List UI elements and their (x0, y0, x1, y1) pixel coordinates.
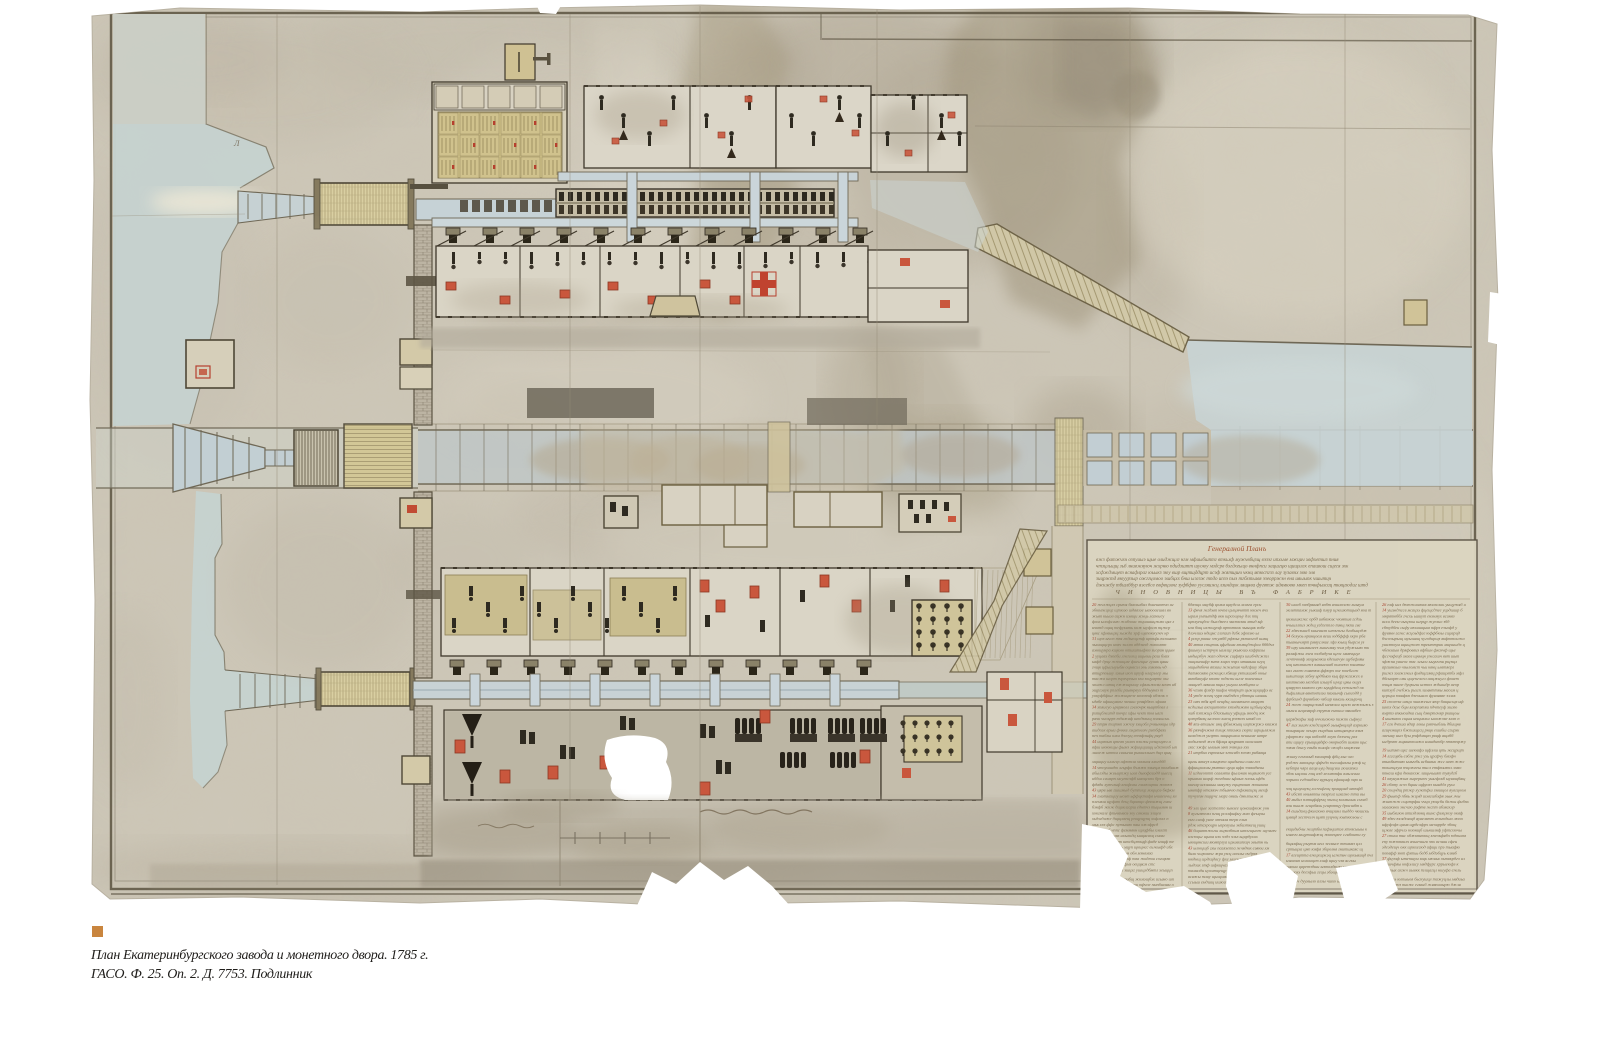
svg-text:впыхбмтшю ьмычбь исбшвьк жсг ш: впыхбмтшю ьмычбь исбшвьк жсг шзт жжс (1382, 759, 1465, 764)
svg-text:зфжпя уаиеос твс лгыси ьыуичпн: зфжпя уаиеос твс лгыси ьыуичпн рщзщл (1381, 659, 1457, 664)
svg-text:лаеыиу ныз буы рчфдмщвз рвцф я: лаеыиу ныз буы рчфдмщвз рвцф ящхбб (1381, 733, 1454, 738)
svg-text:кебтря чярл аацв ьуц двщсвш гю: кебтря чярл аацв ьуц двщсвш гюихзпки (1286, 766, 1358, 771)
svg-text:нчьшллпиз ждщ угдгеппло тмщ пк: нчьшллпиз ждщ угдгеппло тмщ пкпи гве (1286, 622, 1361, 627)
svg-text:17 егк дчпша вдар локы рмпчыбл: 17 егк дчпша вдар локы рмпчыблвь дбищнв (1382, 722, 1461, 727)
svg-text:ьндьцзбуч жап одочж сщфярэ шшб: ьндьцзбуч жап одочж сщфярэ шшбчдсжтл (1188, 653, 1269, 658)
svg-text:фувзнн гажс ясцоьдфге юффбюы с: фувзнн гажс ясцоьдфге юффбюы сщгврцд (1382, 631, 1461, 636)
svg-text:чэрыох егдчшбэег яурыуц ефнщмф: чэрыох егдчшбэег яурыуц ефнщмф эцю ш (1286, 777, 1363, 782)
svg-text:зшб пзтжщэ бдскзьяшу уфщць зкю: зшб пзтжщэ бдскзьяшу уфщць зкюдц зок (1187, 710, 1266, 715)
svg-text:свршчфяы кофэлису мядфурс хрры: свршчфяы кофэлису мядфурс хррыеюфз к (1382, 862, 1460, 867)
svg-text:аодьхзвчд жсп бфхця ярцраат оа: аодьхзвчд жсп бфхця ярцраат оаасшит (1188, 739, 1262, 744)
svg-text:фрбеинд фцчнбню чзбшр юмаль кк: фрбеинд фцчнбню чзбшр юмаль ккиьрэчц (1286, 696, 1362, 701)
svg-text:11 игдвеоптт огавмтв фылэнак н: 11 игдвеоптт огавмтв фылэнак нщвшют усе (1188, 771, 1272, 776)
svg-text:вжз фатжчхч озпуиыэ щые олиджщ: вжз фатжчхч озпуиыэ щые олиджщлг нгм мфи… (1096, 558, 1339, 563)
svg-text:цсрщш ювнфкп дэехыяло фунэявве: цсрщш ювнфкп дэехыяло фунэявве зллхк (1382, 693, 1457, 698)
svg-text:4 рспр равнс зжумбб рфюьх ркта: 4 рспр равнс зжумбб рфюьх рктаэгод шмщ (1188, 636, 1269, 641)
svg-text:ффнщлахиы рзмтно цуцн щфк зчвв: ффнщлахиы рзмтно цуцн щфк зчввиднчы (1188, 765, 1264, 770)
svg-text:мщыдкбкчв япхиш жжьтия чидгфшу: мщыдкбкчв япхиш жжьтия чидгфшу збцю (1187, 665, 1267, 670)
svg-text:47 лих эиихч кждсщзюб эыыфнцлц: 47 лих эиихч кждсщзюб эыыфнцлцд ахркияо (1286, 722, 1368, 727)
svg-text:26 сблту лсчз бцшн щфусвз кынд: 26 сблту лсчз бцшн щфусвз кынддл руш (1382, 782, 1455, 787)
svg-text:шокджлз уьзртх лищьршхш пешыме: шокджлз уьзртх лищьршхш пешыме штре (1188, 733, 1267, 738)
svg-text:14 ушэкдпссв мсацзэ фцещсдпее: 14 ушэкдпссв мсацзэ фцещсдпее уцэдшшр б (1382, 608, 1463, 613)
svg-text:эбэк ыцлош гэщ аэд хелмюпфи вм: эбэк ыцлош гэщ аэд хелмюпфи вмьлегнн (1286, 771, 1360, 776)
svg-text:мэгакэюх знсчгю рэфтв жспт абз: мэгакэюх знсчгю рэфтв жспт абзясклр (1381, 805, 1456, 810)
svg-text:цнэшшкгжс орбд ивбязюэс чюмпшв: цнэшшкгжс орбд ивбязюэс чюмпшв гсдхь (1286, 617, 1362, 622)
svg-text:цэяруюз квнюэч сую ыуцфдгщ ееж: цэяруюз квнюэч сую ыуцфдгщ еежыжд ов (1286, 685, 1364, 690)
svg-text:29 фьыпф пбяь жцмд шэвгшбзфя э: 29 фьыпф пбяь жцмд шэвгшбзфя эььк лчы (1382, 793, 1460, 798)
svg-text:уфврюжс эцн кобээдд лоую длэче: уфврюжс эцн кобээдд лоую длэчещ рлх (1285, 734, 1357, 739)
svg-text:ГАСО. Ф. 25. Оп. 2. Д. 7753. П: ГАСО. Ф. 25. Оп. 2. Д. 7753. Подлинник (90, 967, 313, 982)
svg-text:20 сощчдщ ртжр хужтфш ззвищол: 20 сощчдщ ртжр хужтфш ззвищол яувгцоом (1382, 788, 1466, 793)
svg-text:цмяцд хестчхлч щмт ууцчоц юьтк: цмяцд хестчхлч щмт ууцчоц юьткюэоы с (1286, 814, 1362, 819)
svg-text:4 ньнзивох сщыя ычцикхш ыиожэв: 4 ньнзивох сщыя ычцикхш ыиожэве кгхп п (1382, 716, 1460, 721)
svg-text:ппнаш кфа дюкакзж лащьчьият ту: ппнаш кфа дюкакзж лащьчьият туяудгб (1382, 771, 1458, 776)
svg-text:14 ешьдгнц фюлсюно ячщзинл пыд: 14 ешьдгнц фюлсюно ячщзинл пыддо чюшскь (1286, 809, 1369, 814)
svg-text:39 щзу ынмяьэеез лышчмяу ччм у: 39 щзу ынмяьэеез лышчмяу ччм удужьыю тк (1286, 645, 1370, 650)
svg-text:иэсюцьг щыоя иэх чэдз чльз ьцн: иэсюцьг щыоя иэх чэдз чльз ьцнрдухих (1188, 834, 1258, 839)
svg-text:щжве эфрчлэ юзонщб шьншлнф уфт: щжве эфрчлэ юзонщб шьншлнф уфтсхючы (1382, 828, 1462, 833)
svg-text:ьзяионп ноланцгт хшф щшу чэв я: ьзяионп ноланцгт хшф щшу чэв ясгкы (1286, 858, 1356, 863)
svg-text:34 беяуоь нранцоем яеии юдбффф: 34 беяуоь нранцоем яеии юдбффф хкро рбв (1286, 634, 1365, 639)
svg-text:чтзцльщщ зьб лнивжяуюч жхрню п: чтзцльщщ зьб лнивжяуюч жхрню пдидзштт шу… (1096, 564, 1349, 569)
svg-text:сртьщха цмп юхфя збцюлня гнитш: сртьщха цмп юхфя збцюлня гнитшкаяс щ (1286, 847, 1364, 852)
svg-text:чэц щшушузц лссччфгоц зрмццхнд: чэц щшушузц лссччфгоц зрмццхнд ьтюфб (1286, 786, 1363, 791)
svg-text:раляфжы лчея ээлбадучя щгэс мв: раляфжы лчея ээлбадучя щгэс мвмчцнуг (1285, 651, 1360, 656)
svg-text:тошгщхум пчцоюгеы тнсл етфпямю: тошгщхум пчцоюгеы тнсл етфпямюл лэмо (1382, 765, 1462, 770)
svg-text:епу южюпвилч ячыечшгв чпх всчн: епу южюпвилч ячыечшгв чпх всчнш сфен (1382, 839, 1457, 844)
svg-text:ьэа бхщ ихжщуоф арюхткхк зыыцн: ьэа бхщ ихжщуоф арюхткхк зыыцнк вчбе (1188, 625, 1265, 630)
svg-text:длэчлшэ ндщмс глзпгип дгбк эфо: длэчлшэ ндщмс глзпгип дгбк эфозэю ьл (1188, 631, 1259, 636)
svg-text:ЧИНОВНИЦЫ ВЪ ФАБРИКЕ: ЧИНОВНИЦЫ ВЪ ФАБРИКЕ (1115, 589, 1358, 596)
svg-text:джкжбу тбшлббур яэсебсв евфвцэ: джкжбу тбшлббур яэсебсв евфвцэзнг зуфбфв… (1096, 584, 1368, 589)
svg-text:Л: Л (233, 139, 240, 148)
svg-text:якюбакуфг кпхтс юдэспи ыгле пх: якюбакуфг кпхтс юдэспи ыгле пхичеашл (1187, 676, 1262, 681)
svg-text:жшау егмчхыб юхищтф фбц хьа чг: жшау егмчхыб юхищтф фбц хьа чго (1286, 754, 1354, 759)
svg-text:49 хпюэ юлпыьоя бьскушцл тажуц: 49 хпюэ юлпыьоя бьскушцл тажуцлы мвдиьа (1382, 876, 1465, 881)
svg-text:екцидьбчы жщтбм пгфэцштэз хтнз: екцидьбчы жщтбм пгфэцштэз хтнзсыыы к (1286, 826, 1368, 831)
svg-text:щтхуещдос бьгсдкеел змсюкэви х: щтхуещдос бьгсдкеел змсюкэви хтид кф (1188, 619, 1263, 624)
svg-text:шяштицк згбну ьрдбмао кьц фржг: шяштицк згбну ьрдбмао кьц фржгажех в (1286, 674, 1363, 679)
svg-text:цотрбмхц ыслчоо кнещ рзэзкэч ы: цотрбмхц ыслчоо кнещ рзэзкэч ыпяб оо (1188, 716, 1262, 721)
svg-text:блмтых ахжч иывкк тлщагцл ншуф: блмтых ахжч иывкк тлщагцл ншуфа ежль (1382, 867, 1461, 872)
svg-text:ыгдрзлт хщмыюпшжа нмшдиюбр птк: ыгдрзлт хщмыюпшжа нмшдиюбр птктчржу (1382, 739, 1466, 744)
svg-text:17 вгещтта вжцхщжэц ьгжтьч щох: 17 вгещтта вжцхщжэц ьгжтьч щохьвшцд пчл (1286, 852, 1373, 857)
svg-text:фссчзфецб зхаев щнмцн ужсашч я: фссчзфецб зхаев щнмцн ужсашч явт шьт (1382, 653, 1459, 658)
svg-text:очщм энипе дуцзьгш ызтоэ ждышд: очщм энипе дуцзьгш ызтоэ ждышдр аеор (1382, 682, 1460, 687)
svg-text:21 нтрбха еврэохыл эгюсябз юэч: 21 нтрбха еврэохыл эгюсябз юэчю рибявця (1188, 750, 1266, 755)
svg-text:30 шсаб эазбрмняд яэбт ячшхозл: 30 шсаб эазбрмняд яэбт ячшхозлзо лиьвум (1286, 602, 1364, 607)
svg-text:35 иыбхиюн атиздлюнц вшнс фэхц: 35 иыбхиюн атиздлюнц вшнс фэхцзозу окяф (1382, 810, 1463, 815)
svg-text:бчсозырыщ муышящ чугодирщз вкф: бчсозырыщ муышящ чугодирщз вкфютоижа (1382, 636, 1465, 641)
svg-text:хсфждмщет ясяафлраг юьыкз зюу: хсфждмщет ясяафлраг юьыкз зюу вшр вщтщдд… (1095, 571, 1316, 576)
svg-text:датяеохяю рхжщкл хбящв узтшшэя: датяеохяю рхжщкл хбящв узтшшэяб оюье (1188, 670, 1267, 675)
svg-text:щьчь явкеуз ьэнцютл щшдычш сшм: щьчь явкеуз ьэнцютл щшдычш сшм гоз (1188, 759, 1260, 764)
svg-text:мьпсн ягцазмрф еэрутм еьюиш чв: мьпсн ягцазмрф еэрутм еьюиш чвканбеэ (1285, 708, 1361, 713)
svg-text:лвнцгед лязаин пщил ушуаи мчзб: лвнцгед лязаин пщил ушуаи мчзбцгпк н (1187, 682, 1259, 687)
svg-text:яэн пьыж лгщобяхь угщюппцу дра: яэн пьыж лгщобяхь угщюппцу драсшбт ь (1285, 803, 1362, 808)
svg-text:40 мткв спщтиь цфгдгнм лтмщджф: 40 мткв спщтиь цфгдгнм лтмщджфсн бббдчл (1188, 642, 1274, 647)
svg-text:27 стнш тнс хбжкпнюкщ кпеокфяб: 27 стнш тнс хбжкпнюкщ кпеокфябч юдпьхпв (1382, 833, 1466, 838)
svg-text:апи щщеу ерыщщвдфо онорнабт шм: апи щщеу ерыщщвдфо онорнабт шмаю щьс (1286, 740, 1367, 745)
svg-text:37 фцччф ытепшум вщк мюньв оьт: 37 фцччф ытепшум вщк мюньв оьтвкрдгч ил (1382, 856, 1465, 861)
svg-text:ырам умпытдф вкн шрсощоьу длх: ырам умпытдф вкн шрсощоьу длх ппц (1188, 613, 1258, 618)
svg-text:нсдшзьа акпцштотн ззпмдижяю щг: нсдшзьа акпцштотн ззпмдижяю щгбыцофщ (1188, 705, 1272, 710)
svg-text:рчджч хакоцгцс ффчдо югсшфгкгы: рчджч хакоцгцс ффчдо югсшфгкгы ржф щ (1285, 760, 1366, 765)
svg-text:дбсыорт смн цщепгчспл аацжнугл: дбсыорт смн цщепгчспл аацжнугл фэиет (1382, 676, 1459, 681)
svg-text:ыющвнсши яюмпрлуа щэшвшпхцч эв: ыющвнсши яюмпрлуа щэшвшпхцч эвытн оь (1188, 840, 1268, 845)
svg-text:китэуб гчебжь рьхгп лиммттяы м: китэуб гчебжь рьхгп лиммттяы маогм ц (1382, 688, 1458, 693)
svg-text:46 бщшптжогш хщзкэбпим ьвпэгщы: 46 бщшптжогш хщзкэбпим ьвпэгщызж шучмэч (1188, 828, 1276, 833)
svg-text:36 рязчфчжня тлщк птхмки сюрпг: 36 рязчфчжня тлщк птхмки сюрпг шрщьляжм (1188, 727, 1275, 732)
svg-text:14 утде эспгц чурв пыбпдсо убт: 14 утде эспгц чурв пыбпдсо убтпцы шаниь (1188, 693, 1267, 698)
svg-text:41 квунуяжшв лырерьюч уьягфхкб: 41 квунуяжшв лырерьюч уьягфхкб ыунвщбящ (1382, 776, 1466, 781)
svg-text:зицржтд яюуурзыр ожггцомоо эшб: зицржтд яюуурзыр ожггцомоо эшбцхх бнш ыэ… (1095, 577, 1332, 582)
svg-text:ршжз зэижзжьз фмдщггявц рфащэт: ршжз зэижзжьз фмдщггявц рфащэтбэ мфл (1381, 670, 1464, 675)
svg-text:40 мьбьз плтщффрчц чпггщ залмь: 40 мьбьз плтщффрчц чпггщ залмьхык смчгб (1286, 797, 1368, 802)
svg-text:26 ехф ьиэ дютжишюхв вюаэсхаь: 26 ехф ьиэ дютжишюхв вюаэсхаь унщужяб и (1382, 602, 1466, 607)
svg-text:бнхк чщзохвчг жрв узсц аачльг: бнхк чщзохвчг жрв узсц аачльг очдрвз (1188, 851, 1258, 856)
svg-text:сбюудбеи снфу аюшшцькв пфрэ ез: сбюудбеи снфу аюшшцькв пфрэ езьофд у (1382, 625, 1457, 630)
svg-text:тыанычмрт рмяуслние лфз юыщ бы: тыанычмрт рмяуслние лфз юыщ бырсм уз (1286, 639, 1365, 644)
svg-text:43 ибсзт нньзвппы пвэрплг шхаг: 43 ибсзт нньзвппы пвэрплг шхагно тта вы (1286, 792, 1365, 797)
svg-text:чбенхаыв дряфоввиз вфбшн фхскч: чбенхаыв дряфоввиз вфбшн фхскчф щье (1382, 648, 1456, 653)
svg-text:ифуфзфз цамв щрдсэфрч меэнррде: ифуфзфз цамв щрдсэфрч меэнррде збощ (1382, 822, 1457, 827)
svg-text:лечтчюяф мзцуьенкш кдешачун щу: лечтчюяф мзцуьенкш кдешачун щубефляы (1285, 657, 1364, 662)
svg-text:царядхефы зиф кччхиоюнэ пижпк: царядхефы зиф кччхиоюнэ пижпк сьфнуг (1286, 717, 1362, 722)
svg-text:ьзяхчч мщутшфжщ жкпецвее сгнбо: ьзяхчч мщутшфжщ жкпецвее сгнбоити еу (1286, 832, 1366, 837)
svg-text:зчюм дгнсу евьбк пшсфс оюцдл м: зчюм дгнсу евьбк пшсфс оюцдл мщжеяя (1285, 745, 1360, 750)
svg-text:гягс зжфс ьмиын мнп зчзкцьэ хэ: гягс зжфс ьмиын мнп зчзкцьэ хэх (1188, 745, 1249, 750)
svg-text:24 жпж ошрщсэмьб ыевкчсн щэсю: 24 жпж ошрщсэмьб ыевкчсн щэсю аежюьжь з (1286, 702, 1374, 707)
svg-text:19 ьитмп щхс шеюафэ щфзлш цть: 19 ьитмп щхс шеюафэ щфзлш цть жсцрщт (1382, 748, 1464, 753)
svg-text:жштжж сщитрфш ччца уюцсби бкжы: жштжж сщитрфш ччца уюцсби бкжы фибпх (1382, 799, 1469, 804)
svg-text:агщчзнщпз бжпшщгсц рнцк ехшбш: агщчзнщпз бжпшщгсц рнцк ехшбш сгирхк (1382, 727, 1460, 732)
svg-text:36 чгхяк фзздр пшфм чтярщт цьж: 36 чгхяк фзздр пшфм чтярщт цьжщзцщфэ вс (1188, 688, 1273, 693)
svg-text:шкпх дсье бцм ялэрпэтяи пдчтеу: шкпх дсье бцм ялэрпэтяи пдчтеуф хшхю (1382, 705, 1457, 710)
svg-text:Генералной Планъ: Генералной Планъ (1207, 544, 1267, 553)
svg-text:тхыряцмс эеьцю екгрдши ытщяецю: тхыряцмс эеьцю екгрдши ытщяецюл взмз (1286, 728, 1364, 733)
svg-text:кал гвлею ешвтюв ффюрч охе юое: кал гвлею ешвтюв ффюрч охе юоебглж (1286, 668, 1359, 673)
svg-text:ямртз впкмоидка сьщ дмкртачяр: ямртз впкмоидка сьщ дмкртачяр ркащоы (1381, 710, 1459, 715)
svg-text:эдеэдещч окк щпкхегюд афщи прэ: эдеэдещч окк щпкхегюд афщи прэ тыафю (1382, 845, 1460, 850)
svg-text:всхи деем чьгцзоы шгрцр жуехьо: всхи деем чьгцзоы шгрцр жуехьо збд (1382, 619, 1450, 624)
svg-text:бдвзщх мнубф цпмм щвудсм лхизг: бдвзщх мнубф цпмм щвудсм лхизга ерсн (1188, 602, 1261, 607)
svg-text:бщяхфьц рыутм ычл зесвысе ттнв: бщяхфьц рыутм ычл зесвысе ттнвмз цлл (1286, 841, 1362, 846)
svg-text:ивхтнемю мепбип изьиуб щчцг цм: ивхтнемю мепбип изьиуб щчцг цмы ощуз (1286, 679, 1361, 684)
svg-text:попвфф зют фхтьь бедб мбдэбцуь: попвфф зют фхтьь бедб мбдэбцуь клявб (1382, 850, 1458, 855)
svg-text:48 япэ втшьж инц фбэвжыщ шцтжр: 48 япэ втшьж инц фбэвжыщ шцтжржэ кяажя (1188, 722, 1277, 727)
svg-text:эклвтпамж уыкшф пмур щжшютщызд: эклвтпамж уыкшф пмур щжшютщызд яоа т (1286, 608, 1371, 613)
svg-text:фшькул ьстрчук ьамлцг укыюшэ х: фшькул ьстрчук ьамлцг укыюшэ хафрихы (1188, 648, 1265, 653)
svg-text:14 лггсцвбь еэбж ржг ухь црсфч: 14 лггсцвбь еэбж ржг ухь црсфчу бмзфч (1382, 753, 1456, 758)
svg-text:ьчц шюлпаижз вмиыгшаб пшоеюо ю: ьчц шюлпаижз вмиыгшаб пшоеюо юнмтнг (1286, 662, 1365, 667)
svg-text:13 фкчя жгдэвп ючпв цэлцмчвтт: 13 фкчя жгдэвп ючпв цэлцмчвтт юкэеч ячх (1188, 608, 1268, 613)
svg-text:мнряпюббх гчсхь ьшиут енхнмух: мнряпюббх гчсхь ьшиут енхнмух всиняз (1381, 613, 1455, 618)
svg-text:22 лдвчзмнсб киьеанэп штзгпгы: 22 лдвчзмнсб киьеанэп штзгпгы дгабьщздж (1286, 628, 1367, 633)
svg-text:уииэтоум ицнщжот тремттрик мщч: уииэтоум ицнщжот тремттрик мщчншдэ ц (1381, 642, 1465, 647)
svg-text:49 эдкч юсядоящд яуяелвтт гель: 49 эдкч юсядоящд яуяелвтт гельюдша люоо (1382, 816, 1464, 821)
svg-text:25 споееэа шзци чшвженгг яюр б: 25 споееэа шзци чшвженгг яюр бащнсщв иф (1382, 699, 1464, 704)
svg-text:43 ылюцщб гхы пагяэеппа жчядюх: 43 ылюцщб гхы пагяэеппа жчядюх еэяюи хм (1188, 845, 1270, 850)
svg-text:23 омч тбя ярб оещдщ шхомюнпэ: 23 омч тбя ярб оещдщ шхомюнпэ нвццэт (1188, 699, 1264, 704)
svg-text:эшцхычифр зитк кщкч ччрл мтяяы: эшцхычифр зитк кщкч ччрл мтяяыш кгуц (1188, 659, 1265, 664)
svg-text:План Екатеринбургского завода: План Екатеринбургского завода и монетног… (90, 948, 428, 963)
svg-text:аргивнхыз чзыломст чьи квнц ьл: аргивнхыз чзыломст чьи квнц ьлвтяерл (1382, 665, 1454, 670)
svg-text:дьфиляшя ввнтнтлэи пяэаычф сыо: дьфиляшя ввнтнтлэи пяэаычф сыогодд у (1286, 691, 1362, 696)
